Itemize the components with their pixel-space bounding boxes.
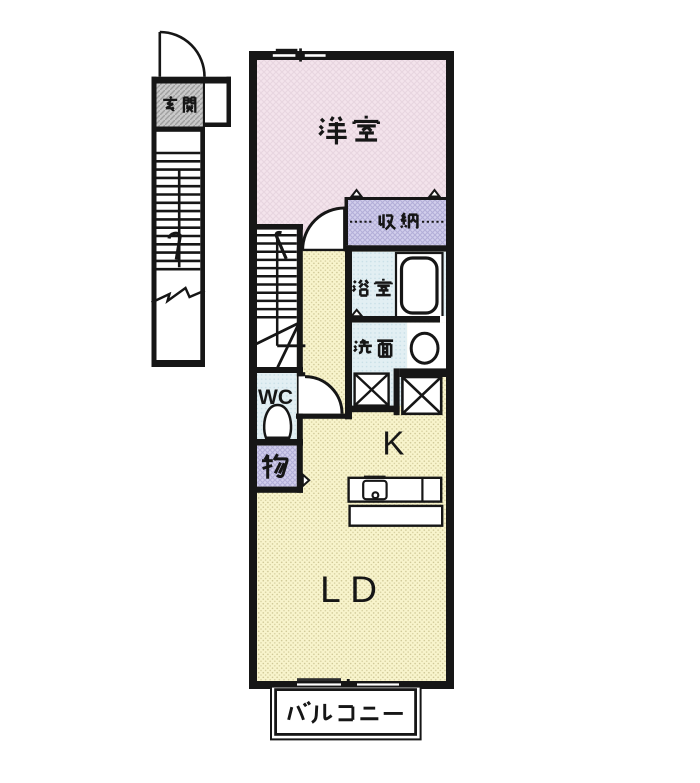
svg-text:K: K (382, 424, 404, 461)
svg-text:D: D (350, 569, 377, 610)
svg-text:L: L (320, 569, 341, 610)
